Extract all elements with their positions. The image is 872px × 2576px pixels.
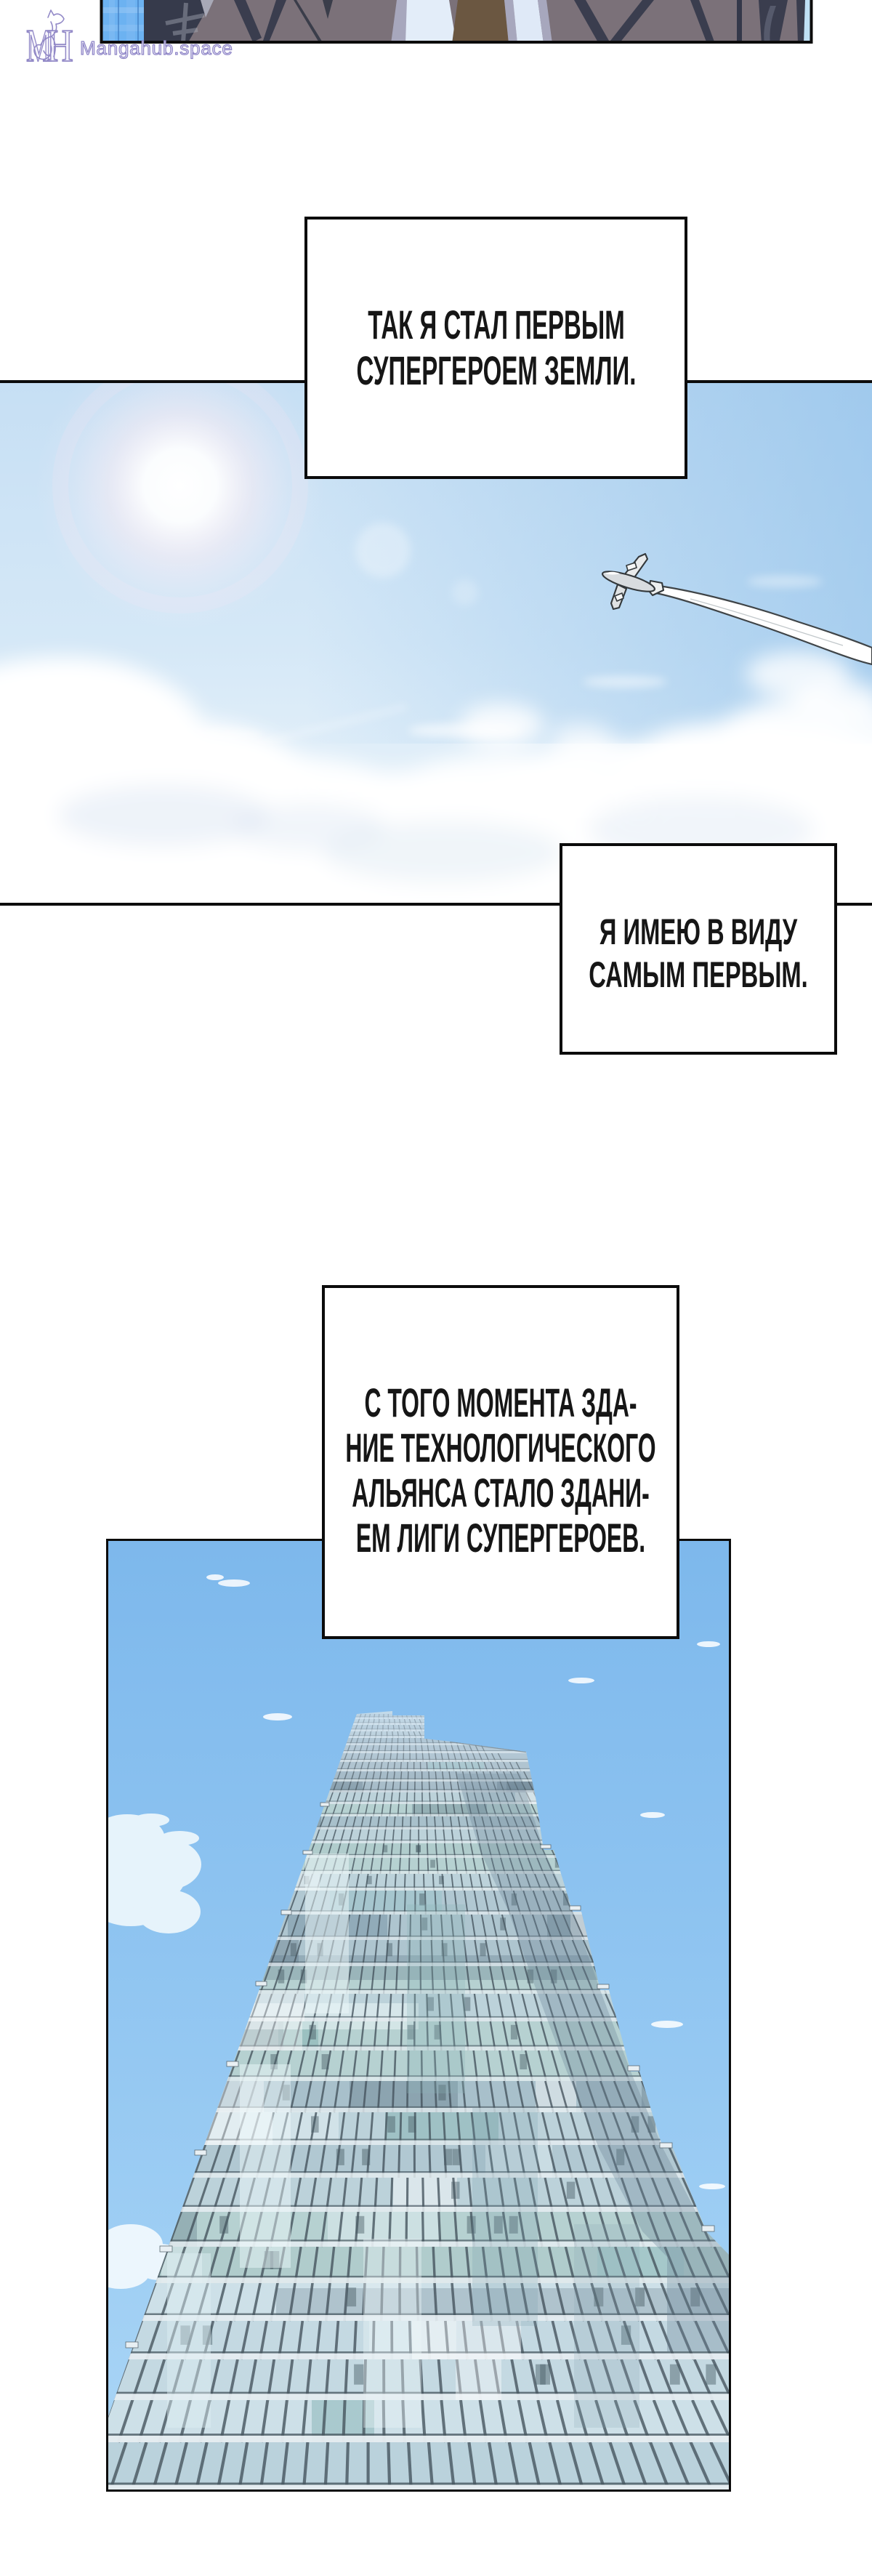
svg-text:Mangahub.space: Mangahub.space — [80, 37, 233, 59]
